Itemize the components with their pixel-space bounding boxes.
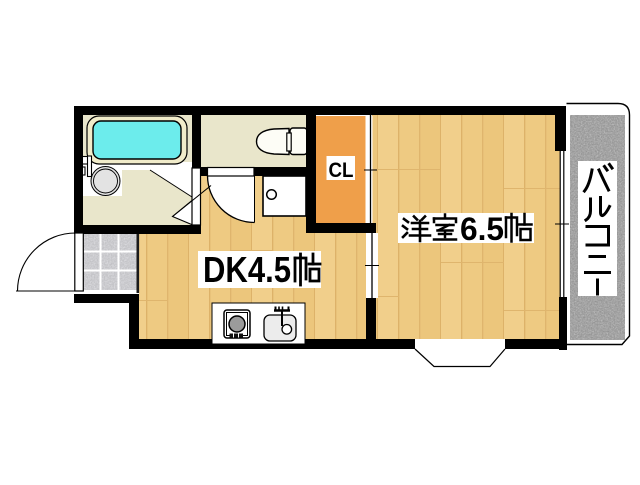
svg-text:6.5: 6.5 — [460, 211, 504, 247]
svg-text:CL: CL — [329, 159, 354, 182]
svg-text:DK4.5: DK4.5 — [203, 249, 291, 290]
